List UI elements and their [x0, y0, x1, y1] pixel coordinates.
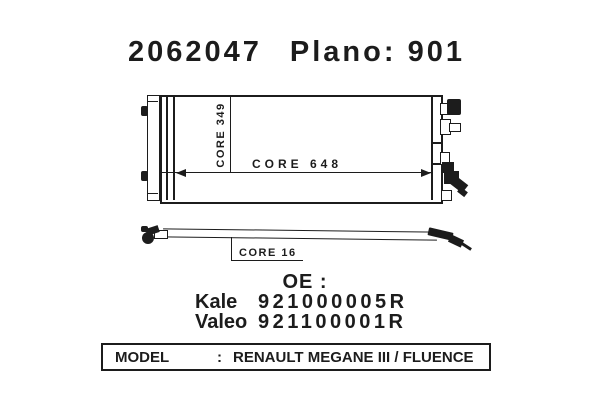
side-profile-bar: [163, 228, 437, 240]
model-value: RENAULT MEGANE III / FLUENCE: [233, 349, 474, 366]
drier-cap-line: [148, 101, 158, 102]
right-tank-wall: [431, 95, 433, 200]
middle-fitting-stub: [449, 123, 461, 132]
bottom-fitting-tip: [457, 187, 468, 197]
model-bar: MODEL : RENAULT MEGANE III / FLUENCE: [101, 343, 491, 371]
catalog-page: 2062047 Plano: 901 CORE 349 CORE 648: [0, 0, 600, 400]
depth-leader-underline: [231, 260, 303, 261]
left-tank-wall: [166, 95, 168, 200]
part-number: 2062047: [128, 36, 262, 69]
core-depth-label: CORE 16: [239, 247, 297, 259]
depth-leader-vertical: [231, 237, 232, 261]
dimension-arrow-left: [176, 169, 186, 177]
receiver-drier: [147, 95, 160, 201]
model-label: MODEL: [115, 349, 217, 366]
top-fitting-block: [447, 99, 461, 115]
page-title: 2062047 Plano: 901: [128, 36, 465, 69]
width-dimension-line: [161, 172, 431, 173]
side-left-cap: [141, 226, 148, 232]
core-height-label: CORE 349: [215, 98, 227, 172]
oe-brand: Valeo: [195, 311, 258, 334]
right-tank-divider: [431, 142, 441, 144]
left-tank-wall: [173, 95, 175, 200]
plano-number: Plano: 901: [290, 36, 465, 69]
condenser-core-outline: [160, 95, 443, 204]
dimension-arrow-right: [421, 169, 431, 177]
side-right-tip: [461, 242, 472, 251]
drier-cap-line: [148, 193, 158, 194]
model-separator: :: [217, 349, 233, 366]
oe-number: 921100001R: [258, 311, 406, 334]
bottom-corner-step: [441, 190, 452, 201]
core-width-label: CORE 648: [252, 157, 342, 171]
height-dimension-line: [230, 95, 231, 173]
drier-bracket: [141, 106, 148, 116]
oe-reference-row: Valeo 921100001R: [195, 311, 406, 334]
drier-bracket: [141, 171, 148, 181]
